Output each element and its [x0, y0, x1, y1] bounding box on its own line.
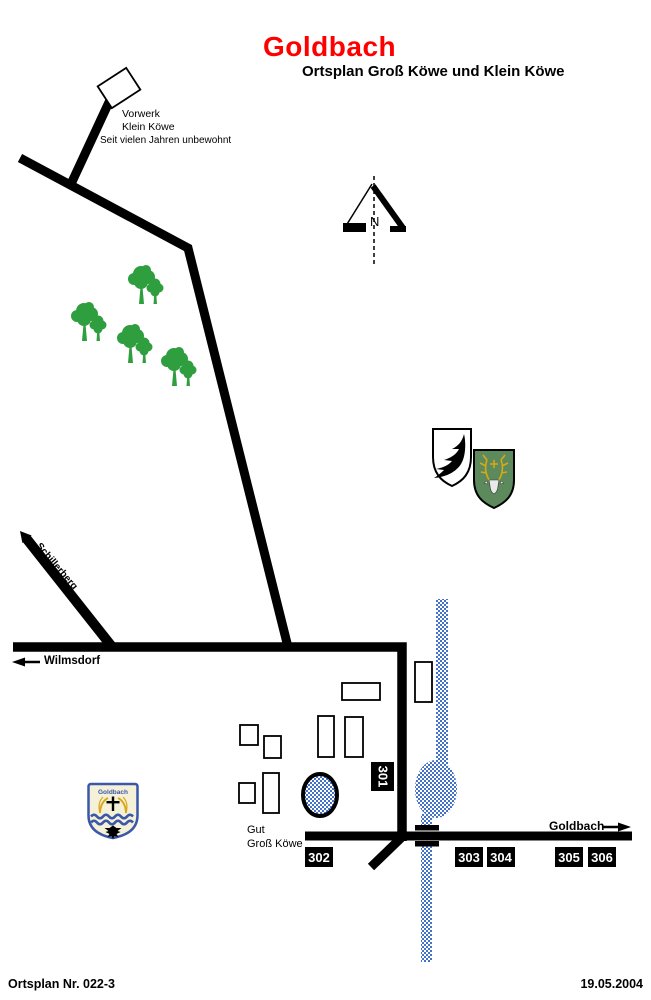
road-wilmsdorf-main — [13, 647, 402, 841]
vorwerk-label: Vorwerk Klein Köwe Seit vielen Jahren un… — [100, 108, 231, 147]
road-stub-diagonal — [371, 838, 401, 867]
north-label: N — [370, 214, 379, 229]
gut-gross-koewe-label: Gut Groß Köwe — [247, 824, 303, 851]
stream-upper — [436, 599, 448, 765]
goldbach-road-label: Goldbach — [549, 819, 604, 833]
plan-number-label: Ortsplan Nr. 022-3 — [8, 977, 115, 991]
mill-pond — [415, 760, 457, 818]
tree-icon — [117, 324, 153, 363]
coat-of-arms-wing-icon — [433, 429, 471, 486]
plot-number-301: 301 — [371, 762, 394, 791]
building — [263, 773, 279, 813]
building — [240, 725, 258, 745]
building — [318, 716, 334, 757]
gut-line1: Gut — [247, 824, 303, 838]
building — [264, 736, 281, 758]
tree-icon — [128, 265, 164, 304]
plot-number-303: 303 — [455, 847, 483, 867]
tree-icon — [71, 302, 107, 341]
village-shield-name: Goldbach — [98, 789, 128, 796]
plot-number-302: 302 — [305, 847, 333, 867]
wilmsdorf-arrow-icon — [12, 658, 40, 667]
building — [345, 717, 363, 757]
goldbach-arrow-icon — [603, 823, 631, 832]
north-arrow-icon: N — [343, 176, 406, 266]
bridge-icon — [415, 841, 439, 847]
building — [342, 683, 380, 700]
tree-icon — [161, 347, 197, 386]
page-subtitle: Ortsplan Groß Köwe und Klein Köwe — [302, 63, 565, 80]
coat-of-arms-stag-icon — [474, 450, 514, 508]
farm-pond — [303, 774, 337, 816]
vorwerk-line2: Klein Köwe — [100, 121, 231, 134]
plot-number-304: 304 — [487, 847, 515, 867]
building — [415, 662, 432, 702]
plot-number-306: 306 — [588, 847, 616, 867]
bridge-icon — [415, 825, 439, 831]
coat-of-arms-goldbach-icon: Goldbach — [89, 784, 138, 839]
date-label: 19.05.2004 — [580, 977, 643, 991]
building — [239, 783, 255, 803]
stream-lower — [421, 845, 432, 962]
gut-line2: Groß Köwe — [247, 838, 303, 852]
wilmsdorf-road-label: Wilmsdorf — [44, 655, 100, 667]
vorwerk-line3: Seit vielen Jahren unbewohnt — [100, 134, 231, 147]
vorwerk-line1: Vorwerk — [100, 108, 231, 121]
map-canvas: N Goldbach — [0, 0, 651, 1000]
plot-number-305: 305 — [555, 847, 583, 867]
page-title: Goldbach — [263, 31, 396, 63]
